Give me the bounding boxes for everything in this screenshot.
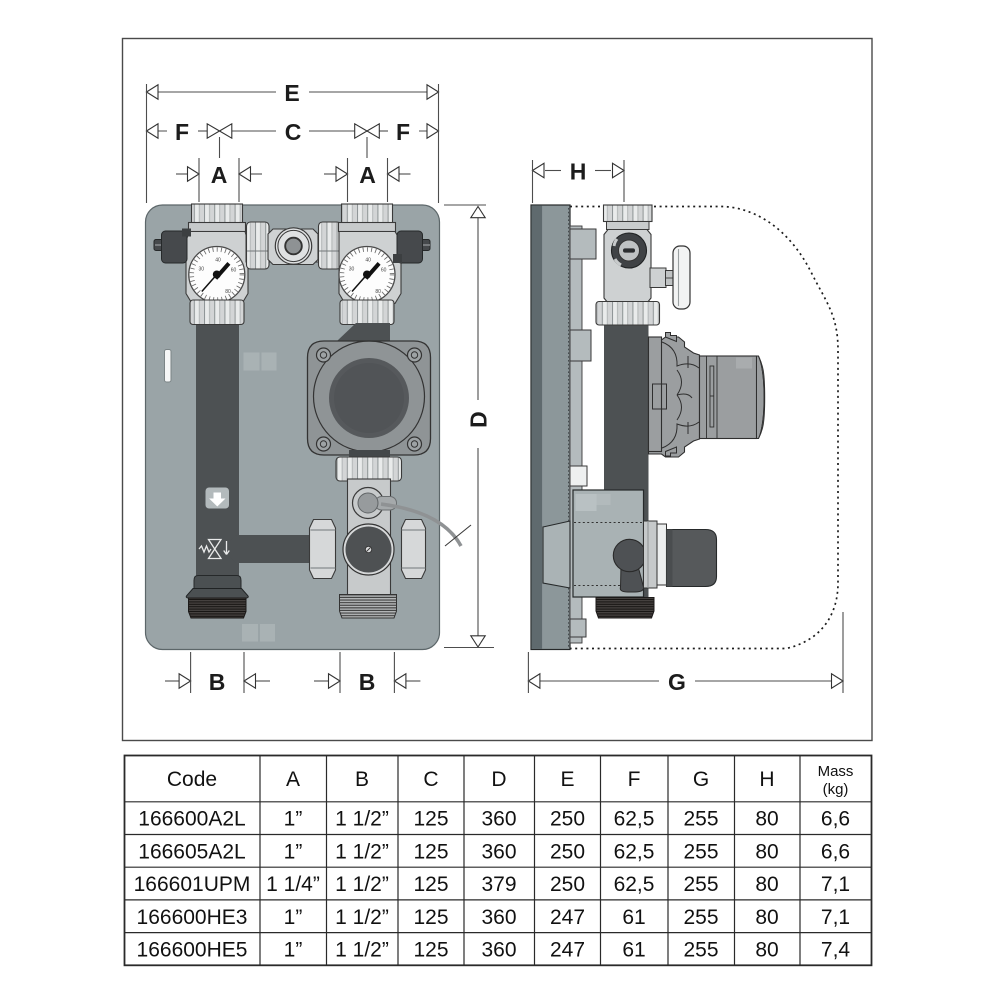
- svg-text:1 1/2”: 1 1/2”: [335, 808, 389, 831]
- svg-text:166605A2L: 166605A2L: [138, 840, 245, 863]
- svg-text:1”: 1”: [284, 840, 303, 863]
- svg-text:B: B: [355, 768, 369, 791]
- svg-text:360: 360: [481, 906, 516, 929]
- svg-text:255: 255: [683, 873, 718, 896]
- svg-text:D: D: [466, 411, 492, 428]
- svg-text:360: 360: [481, 840, 516, 863]
- svg-text:80: 80: [755, 939, 778, 962]
- svg-text:7,1: 7,1: [821, 906, 850, 929]
- svg-text:1 1/2”: 1 1/2”: [335, 906, 389, 929]
- svg-text:247: 247: [550, 939, 585, 962]
- svg-text:61: 61: [622, 939, 645, 962]
- svg-text:E: E: [284, 80, 299, 106]
- svg-text:1 1/4”: 1 1/4”: [266, 873, 320, 896]
- svg-text:360: 360: [481, 939, 516, 962]
- svg-text:F: F: [396, 119, 410, 145]
- svg-text:1 1/2”: 1 1/2”: [335, 939, 389, 962]
- svg-text:1”: 1”: [284, 906, 303, 929]
- svg-text:1 1/2”: 1 1/2”: [335, 873, 389, 896]
- svg-text:60: 60: [231, 268, 237, 274]
- svg-text:80: 80: [755, 840, 778, 863]
- svg-text:255: 255: [683, 906, 718, 929]
- svg-text:1”: 1”: [284, 808, 303, 831]
- svg-text:125: 125: [413, 840, 448, 863]
- svg-text:F: F: [175, 119, 189, 145]
- svg-text:60: 60: [381, 268, 387, 274]
- svg-text:125: 125: [413, 906, 448, 929]
- svg-text:B: B: [209, 669, 226, 695]
- svg-text:166600HE5: 166600HE5: [137, 939, 248, 962]
- svg-text:250: 250: [550, 840, 585, 863]
- svg-text:6,6: 6,6: [821, 808, 850, 831]
- svg-text:E: E: [560, 768, 574, 791]
- svg-text:62,5: 62,5: [614, 873, 655, 896]
- svg-text:62,5: 62,5: [614, 808, 655, 831]
- svg-text:250: 250: [550, 808, 585, 831]
- svg-text:30: 30: [349, 267, 355, 273]
- svg-text:Code: Code: [167, 768, 217, 791]
- svg-text:250: 250: [550, 873, 585, 896]
- svg-text:H: H: [570, 159, 587, 185]
- svg-text:1 1/2”: 1 1/2”: [335, 840, 389, 863]
- svg-text:166601UPM: 166601UPM: [134, 873, 251, 896]
- svg-text:C: C: [423, 768, 438, 791]
- svg-text:D: D: [491, 768, 506, 791]
- svg-text:61: 61: [622, 906, 645, 929]
- svg-text:360: 360: [481, 808, 516, 831]
- svg-text:125: 125: [413, 873, 448, 896]
- svg-text:166600HE3: 166600HE3: [137, 906, 248, 929]
- svg-text:125: 125: [413, 939, 448, 962]
- svg-text:255: 255: [683, 840, 718, 863]
- svg-text:379: 379: [481, 873, 516, 896]
- svg-text:C: C: [285, 119, 302, 145]
- svg-text:247: 247: [550, 906, 585, 929]
- svg-text:H: H: [759, 768, 774, 791]
- svg-text:6,6: 6,6: [821, 840, 850, 863]
- svg-text:Mass: Mass: [818, 763, 854, 780]
- svg-text:A: A: [211, 162, 228, 188]
- svg-text:166600A2L: 166600A2L: [138, 808, 245, 831]
- svg-text:F: F: [628, 768, 641, 791]
- svg-text:B: B: [359, 669, 376, 695]
- svg-text:30: 30: [199, 267, 205, 273]
- svg-text:80: 80: [755, 873, 778, 896]
- svg-text:A: A: [359, 162, 376, 188]
- svg-text:40: 40: [215, 258, 221, 264]
- svg-text:80: 80: [375, 289, 381, 295]
- svg-text:7,4: 7,4: [821, 939, 851, 962]
- svg-text:80: 80: [225, 289, 231, 295]
- svg-text:62,5: 62,5: [614, 840, 655, 863]
- svg-text:80: 80: [755, 808, 778, 831]
- svg-text:255: 255: [683, 939, 718, 962]
- svg-text:(kg): (kg): [823, 781, 849, 798]
- svg-text:125: 125: [413, 808, 448, 831]
- svg-text:255: 255: [683, 808, 718, 831]
- svg-text:7,1: 7,1: [821, 873, 850, 896]
- svg-text:G: G: [668, 669, 686, 695]
- svg-text:40: 40: [365, 258, 371, 264]
- svg-text:A: A: [286, 768, 300, 791]
- svg-text:80: 80: [755, 906, 778, 929]
- svg-text:G: G: [693, 768, 709, 791]
- svg-text:1”: 1”: [284, 939, 303, 962]
